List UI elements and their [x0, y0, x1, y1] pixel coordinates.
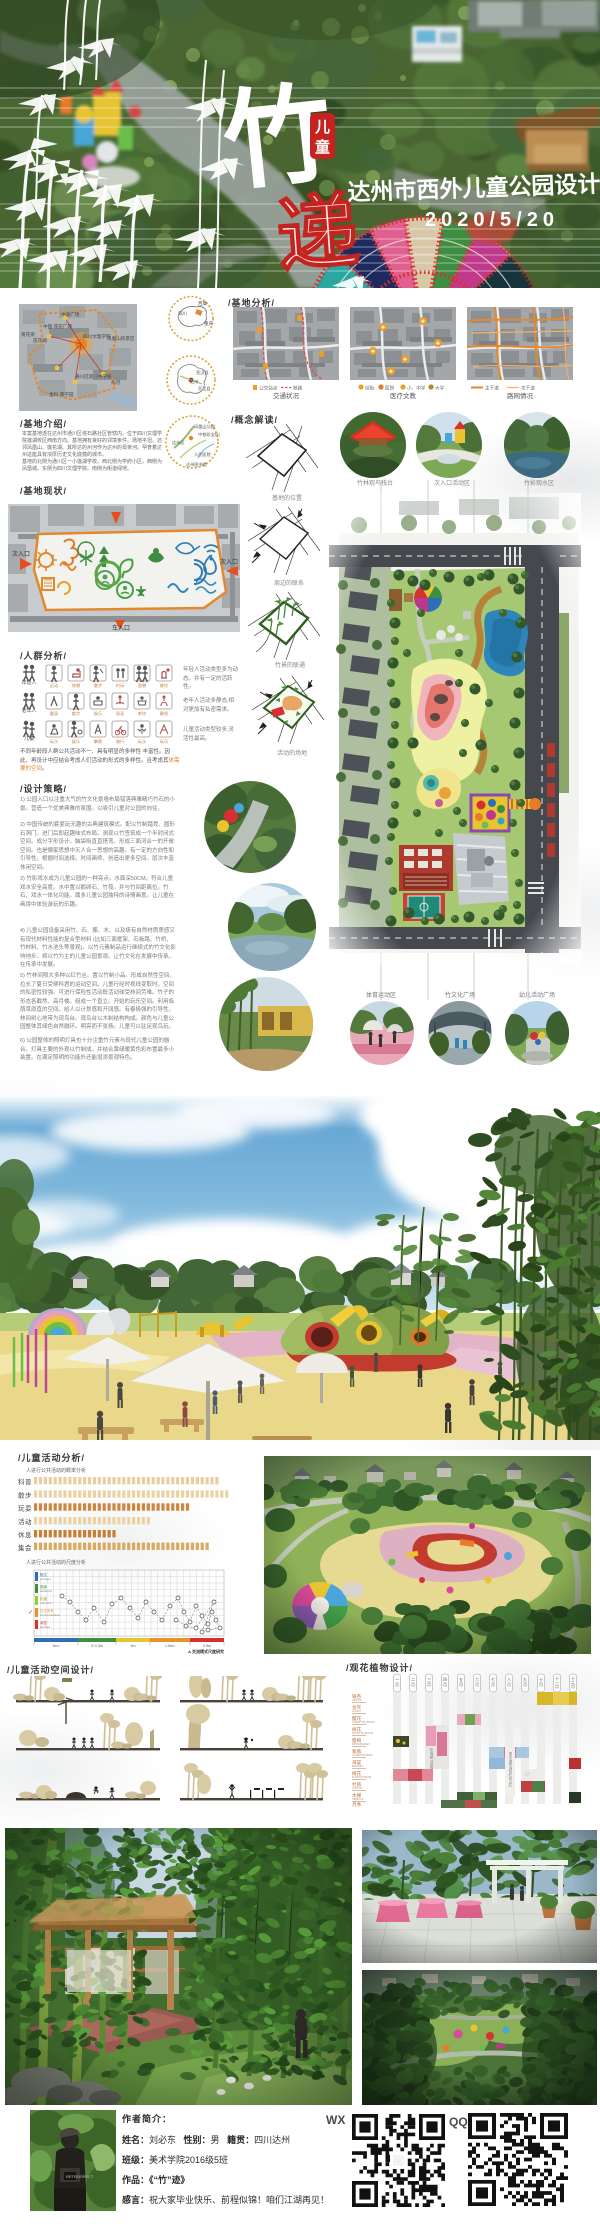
svg-text:医院: 医院	[385, 385, 395, 392]
svg-text:玩乐: 玩乐	[160, 738, 168, 745]
svg-text:约玩: 约玩	[116, 682, 125, 689]
svg-text:CHERRY BLOSSOM: CHERRY BLOSSOM	[352, 1721, 375, 1724]
svg-text:四川: 四川	[178, 311, 187, 316]
svg-text:老年人: 老年人	[21, 707, 36, 714]
svg-text:健身: 健身	[50, 710, 58, 717]
svg-text:WINTERSWEET: WINTERSWEET	[352, 1743, 370, 1746]
svg-text:✚: ✚	[403, 357, 407, 363]
svg-text:达州区: 达州区	[172, 439, 185, 446]
svg-text:中通广场: 中通广场	[61, 311, 80, 318]
svg-text:铁路: 铁路	[293, 385, 303, 392]
svg-text:CUCKOO: CUCKOO	[352, 1787, 363, 1790]
svg-text:stranger: stranger	[40, 1577, 51, 1581]
svg-text:宣汉县: 宣汉县	[196, 369, 209, 376]
svg-text:黄花梁: 黄花梁	[21, 331, 35, 338]
svg-text:松海棠·迎春绿: 松海棠·迎春绿	[429, 1747, 434, 1771]
svg-text:✚: ✚	[389, 369, 393, 375]
svg-text:人民医院: 人民医院	[194, 451, 212, 458]
svg-text:散步: 散步	[72, 710, 80, 717]
svg-text:路网情况: 路网情况	[507, 391, 534, 399]
svg-text:玩沙: 玩沙	[50, 739, 59, 745]
svg-text:中国·莲花广场: 中国·莲花广场	[43, 323, 72, 330]
svg-text:攀爬: 攀爬	[94, 738, 103, 745]
svg-text:金科·南学园: 金科·南学园	[49, 391, 74, 398]
svg-text:月: 月	[443, 1682, 447, 1687]
svg-text:休憩: 休憩	[72, 682, 81, 689]
svg-text:莲花湖: 莲花湖	[33, 337, 47, 344]
svg-text:月: 月	[491, 1682, 495, 1687]
svg-text:茶饮: 茶饮	[138, 710, 147, 717]
svg-text:通川区第八中学校: 通川区第八中学校	[75, 373, 112, 380]
svg-text:中铁珍宝社区: 中铁珍宝社区	[198, 431, 220, 438]
svg-text:凤凰山公园: 凤凰山公园	[194, 423, 215, 430]
svg-text:玩耍: 玩耍	[18, 1505, 32, 1513]
svg-text:PEACH BLOSSOM: PEACH BLOSSOM	[352, 1732, 373, 1735]
svg-text:重庆: 重庆	[204, 320, 213, 327]
svg-text:开江县: 开江县	[198, 385, 211, 392]
svg-text:年轻人: 年轻人	[21, 679, 36, 686]
svg-text:玩水: 玩水	[138, 738, 147, 745]
svg-text:运动: 运动	[50, 682, 58, 689]
svg-text:散步: 散步	[94, 682, 102, 689]
svg-text:骑行: 骑行	[116, 738, 124, 745]
svg-text:散步: 散步	[18, 1491, 32, 1500]
svg-text:月: 月	[395, 1682, 399, 1687]
svg-text:次入口: 次入口	[220, 558, 238, 566]
svg-text:manners: manners	[40, 1601, 52, 1605]
svg-text:娱乐: 娱乐	[72, 738, 80, 745]
svg-text:西康: 西康	[198, 300, 207, 307]
svg-text:0.5m: 0.5m	[203, 1644, 211, 1648]
svg-text:医疗文教: 医疗文教	[390, 391, 417, 399]
svg-text:娱乐: 娱乐	[94, 710, 102, 717]
svg-text:families: families	[40, 1625, 51, 1629]
svg-text:月: 月	[507, 1682, 511, 1687]
svg-text:静思: 静思	[160, 710, 168, 716]
svg-text:BEGONIA: BEGONIA	[352, 1765, 363, 1768]
svg-text:1.5m>: 1.5m>	[165, 1644, 175, 1648]
svg-text:凤凰山风景区: 凤凰山风景区	[107, 335, 135, 342]
svg-text:月: 月	[475, 1682, 479, 1687]
svg-text:公交站点: 公交站点	[259, 385, 278, 392]
svg-text:餐饮: 餐饮	[160, 682, 169, 689]
svg-text:阅读: 阅读	[116, 710, 124, 717]
svg-text:科普: 科普	[18, 1477, 32, 1486]
svg-text:综街: 综街	[365, 385, 375, 392]
svg-text:休息: 休息	[18, 1530, 32, 1539]
svg-text:2020/5/20: 2020/5/20	[425, 209, 559, 231]
svg-text:交通状况: 交通状况	[273, 391, 300, 399]
svg-text:ACACIA: ACACIA	[352, 1710, 361, 1713]
svg-text:3~2.5m: 3~2.5m	[91, 1644, 103, 1648]
svg-text:2m: 2m	[131, 1644, 136, 1648]
svg-text:游憩: 游憩	[138, 682, 147, 689]
svg-text:PLUM BLOSSOM: PLUM BLOSSOM	[352, 1776, 371, 1779]
svg-text:月: 月	[459, 1682, 463, 1687]
svg-text:月: 月	[539, 1682, 543, 1687]
svg-text:LAGERSTROEMIA: LAGERSTROEMIA	[352, 1754, 373, 1757]
svg-text:月: 月	[523, 1682, 527, 1687]
svg-text:垂丝海棠·满堂红映山红: 垂丝海棠·满堂红映山红	[508, 1751, 512, 1788]
svg-text:✚: ✚	[371, 349, 375, 355]
svg-text:月: 月	[427, 1682, 431, 1687]
svg-text:月: 月	[411, 1682, 415, 1687]
svg-text:次入口: 次入口	[12, 550, 30, 558]
svg-text:儿: 儿	[314, 119, 330, 136]
svg-text:audience: audience	[40, 1589, 53, 1593]
svg-text:主干道: 主干道	[485, 385, 499, 392]
svg-text:✚: ✚	[436, 341, 440, 347]
svg-text:RETROSPECT: RETROSPECT	[66, 2174, 94, 2179]
svg-text:达州图书馆: 达州图书馆	[186, 461, 207, 468]
svg-text:达州: 达州	[190, 378, 198, 385]
svg-text:GINKGO: GINKGO	[352, 1699, 362, 1702]
svg-text:3m>: 3m>	[52, 1644, 59, 1648]
svg-text:✓: ✓	[28, 1610, 33, 1616]
svg-text:儿童: 儿童	[24, 735, 34, 742]
svg-text:A 交流模式尺度研究: A 交流模式尺度研究	[188, 1648, 224, 1654]
svg-text:月: 月	[555, 1684, 559, 1689]
svg-text:大学: 大学	[435, 385, 445, 392]
svg-text:✚: ✚	[381, 325, 385, 331]
svg-text:车入口: 车入口	[112, 624, 130, 632]
svg-text:小、中学: 小、中学	[407, 385, 426, 392]
svg-text:州河: 州河	[111, 379, 121, 385]
svg-text:月: 月	[571, 1684, 575, 1689]
svg-text:月季: 月季	[352, 1801, 362, 1808]
svg-text:✚: ✚	[421, 319, 425, 325]
svg-text:集会: 集会	[18, 1543, 32, 1552]
svg-text:communication: communication	[40, 1613, 61, 1617]
svg-text:活动: 活动	[18, 1517, 32, 1526]
svg-text:童: 童	[315, 138, 330, 156]
svg-text:次干道: 次干道	[521, 385, 535, 392]
svg-text:HIBISCUS: HIBISCUS	[352, 1798, 364, 1801]
